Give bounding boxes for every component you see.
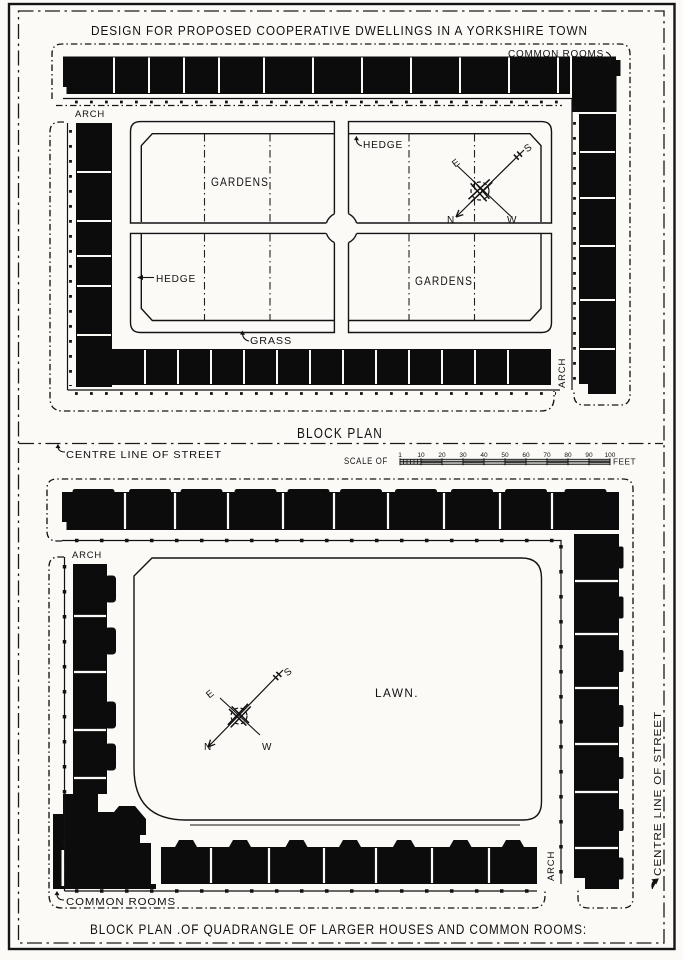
svg-text:30: 30 xyxy=(459,452,467,459)
svg-text:HEDGE: HEDGE xyxy=(363,140,403,151)
svg-text:ARCH: ARCH xyxy=(546,851,557,881)
svg-text:LAWN.: LAWN. xyxy=(375,686,419,700)
svg-text:COMMON ROOMS: COMMON ROOMS xyxy=(508,48,604,60)
svg-text:COMMON ROOMS: COMMON ROOMS xyxy=(66,896,176,908)
svg-text:70: 70 xyxy=(543,452,551,459)
svg-text:CENTRE LINE OF STREET: CENTRE LINE OF STREET xyxy=(652,711,664,876)
svg-text:ARCH: ARCH xyxy=(75,109,105,120)
svg-text:HEDGE: HEDGE xyxy=(156,274,196,285)
svg-text:FEET: FEET xyxy=(613,457,636,467)
svg-text:40: 40 xyxy=(480,452,488,459)
svg-text:W: W xyxy=(262,742,272,753)
svg-text:80: 80 xyxy=(564,452,572,459)
svg-text:BLOCK PLAN .OF QUADRANGLE OF L: BLOCK PLAN .OF QUADRANGLE OF LARGER HOUS… xyxy=(90,922,587,937)
svg-text:1: 1 xyxy=(398,452,402,459)
svg-text:ARCH: ARCH xyxy=(557,358,568,388)
svg-text:SCALE OF: SCALE OF xyxy=(344,456,388,466)
svg-text:W: W xyxy=(507,215,517,226)
svg-text:DESIGN FOR PROPOSED COOPERATIV: DESIGN FOR PROPOSED COOPERATIVE DWELLING… xyxy=(91,23,588,38)
svg-text:GRASS: GRASS xyxy=(250,336,292,347)
svg-text:GARDENS: GARDENS xyxy=(211,177,269,189)
svg-text:GARDENS: GARDENS xyxy=(415,276,473,288)
svg-text:ARCH: ARCH xyxy=(72,550,102,561)
svg-text:N: N xyxy=(204,742,211,753)
svg-text:N: N xyxy=(447,215,454,226)
svg-text:BLOCK PLAN: BLOCK PLAN xyxy=(297,425,383,442)
svg-text:90: 90 xyxy=(585,452,593,459)
svg-text:CENTRE LINE OF STREET: CENTRE LINE OF STREET xyxy=(66,449,222,461)
svg-text:10: 10 xyxy=(417,452,425,459)
svg-text:50: 50 xyxy=(501,452,509,459)
svg-text:60: 60 xyxy=(522,452,530,459)
svg-text:20: 20 xyxy=(438,452,446,459)
